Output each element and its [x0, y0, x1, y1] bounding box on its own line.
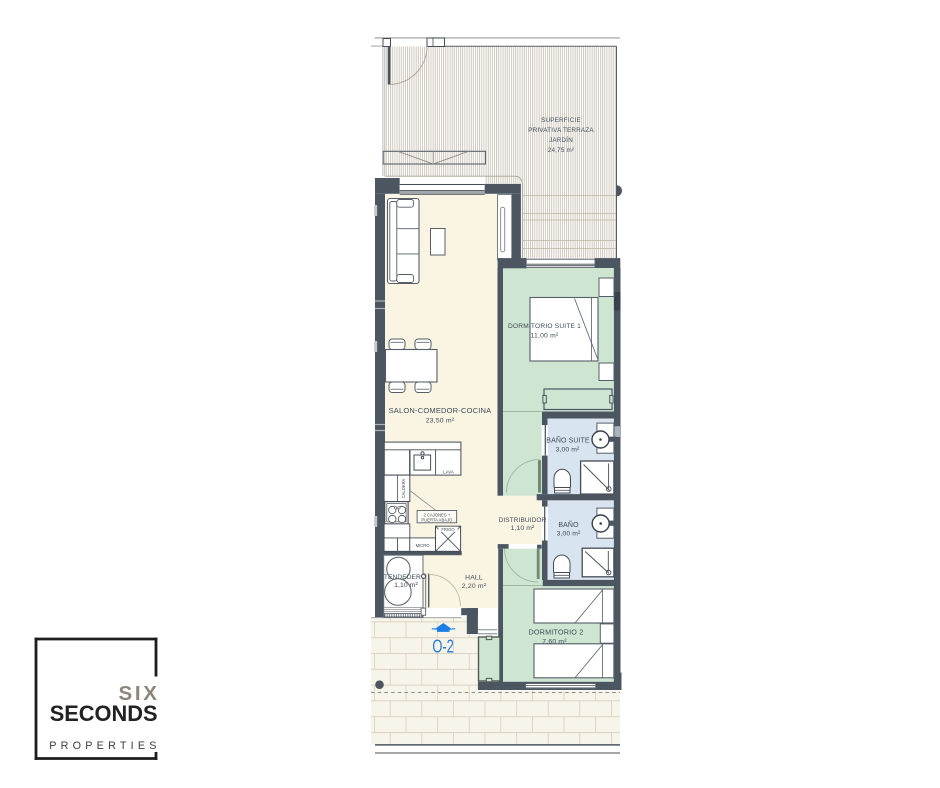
svg-text:DISTRIBUIDOR: DISTRIBUIDOR [499, 517, 547, 524]
svg-text:2,20 m²: 2,20 m² [462, 583, 487, 590]
svg-text:7,60 m²: 7,60 m² [542, 639, 567, 646]
svg-text:1,10 m²: 1,10 m² [394, 582, 418, 589]
svg-text:TENDEDERO: TENDEDERO [384, 574, 426, 581]
svg-text:3,00 m²: 3,00 m² [557, 531, 581, 538]
svg-text:3,00 m²: 3,00 m² [556, 446, 580, 453]
svg-text:FRIGO: FRIGO [441, 527, 455, 532]
svg-text:HALL: HALL [465, 574, 483, 581]
svg-text:24,75 m²: 24,75 m² [548, 147, 574, 154]
svg-text:MICRO: MICRO [416, 543, 431, 548]
svg-text:O-2: O-2 [432, 635, 454, 656]
svg-text:PUERTA ABAJO: PUERTA ABAJO [421, 517, 453, 522]
svg-text:DORMITORIO SUITE 1: DORMITORIO SUITE 1 [508, 323, 581, 330]
svg-text:LAVA: LAVA [443, 469, 454, 474]
svg-text:BAÑO: BAÑO [558, 520, 579, 529]
svg-text:BAÑO SUITE: BAÑO SUITE [546, 436, 590, 445]
svg-text:JARDÍN: JARDÍN [549, 135, 573, 144]
svg-text:11,00 m²: 11,00 m² [531, 333, 559, 340]
svg-text:SUPERFICIE: SUPERFICIE [541, 117, 581, 124]
svg-text:23,50 m²: 23,50 m² [426, 418, 455, 425]
svg-text:SECONDS: SECONDS [50, 701, 158, 726]
svg-text:DORMITORIO 2: DORMITORIO 2 [529, 628, 584, 637]
svg-text:PROPERTIES: PROPERTIES [49, 740, 160, 752]
svg-text:PRIVATIVA TERRAZA: PRIVATIVA TERRAZA [528, 127, 594, 134]
svg-text:CALDERA: CALDERA [401, 478, 406, 498]
svg-text:SALON-COMEDOR-COCINA: SALON-COMEDOR-COCINA [389, 406, 492, 415]
svg-text:1,10 m²: 1,10 m² [511, 525, 535, 532]
